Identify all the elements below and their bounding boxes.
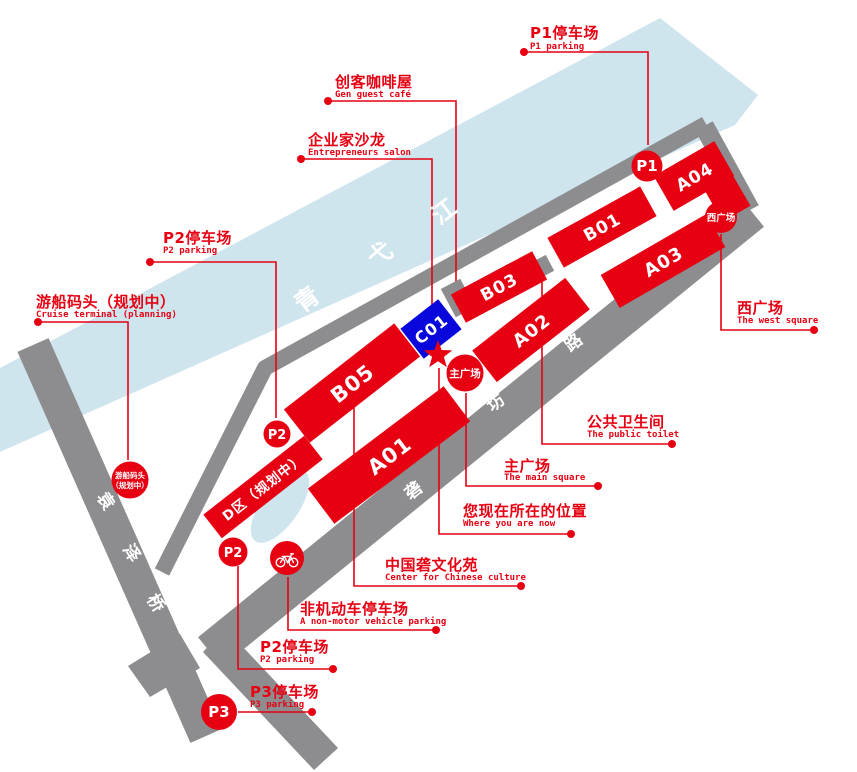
label-p2-parking-upper-zh: P2停车场	[163, 229, 232, 247]
cruise-marker-line2: （规划中）	[111, 480, 149, 490]
label-you-are-here-zh: 您现在所在的位置	[462, 502, 587, 520]
bicycle-parking-marker	[270, 541, 304, 575]
p2-upper-marker: P2	[264, 421, 291, 448]
main-square-marker: 主广场	[447, 355, 484, 392]
label-main-square-en: The main square	[504, 472, 586, 483]
label-entrepreneurs-salon-zh: 企业家沙龙	[307, 131, 386, 149]
label-nonmotor-parking-zh: 非机动车停车场	[300, 600, 409, 618]
p2-upper-marker-label: P2	[268, 428, 287, 443]
label-p2-parking-lower: P2停车场 P2 parking	[260, 638, 337, 673]
label-p1-parking-en: P1 parking	[530, 41, 584, 52]
cruise-terminal-marker: 游船码头 （规划中）	[111, 462, 149, 499]
main-square-marker-label: 主广场	[449, 367, 481, 380]
label-west-square: 西广场 The west square	[737, 299, 819, 334]
label-you-are-here: 您现在所在的位置 Where you are now	[462, 502, 587, 538]
label-entrepreneurs-salon-en: Entrepreneurs salon	[308, 148, 411, 158]
label-maker-cafe-zh: 创客咖啡屋	[334, 73, 413, 91]
label-culture-center: 中国砻文化苑 Center for Chinese culture	[385, 556, 526, 590]
p2-lower-marker: P2	[219, 538, 248, 567]
p1-marker-label: P1	[636, 157, 657, 175]
p2-lower-marker-label: P2	[224, 546, 243, 561]
label-main-square: 主广场 The main square	[504, 457, 602, 490]
label-public-toilet-en: The public toilet	[587, 429, 679, 440]
label-p3-parking-en: P3 parking	[250, 699, 304, 710]
label-culture-center-zh: 中国砻文化苑	[385, 556, 478, 574]
label-p2-parking-upper-en: P2 parking	[163, 245, 217, 256]
label-west-square-zh: 西广场	[737, 299, 784, 317]
p1-marker: P1	[632, 151, 663, 182]
label-p2-parking-lower-en: P2 parking	[260, 654, 314, 665]
p3-marker-label: P3	[208, 703, 229, 721]
cruise-marker-line1: 游船码头	[115, 470, 145, 480]
west-square-marker: 西广场	[705, 201, 737, 233]
p3-marker: P3	[201, 694, 237, 730]
label-you-are-here-en: Where you are now	[463, 519, 556, 529]
label-cruise-terminal-en: Cruise terminal (planning)	[36, 309, 177, 320]
label-maker-cafe-en: Gen guest café	[335, 89, 411, 100]
label-public-toilet: 公共卫生间 The public toilet	[587, 413, 679, 448]
label-nonmotor-parking: 非机动车停车场 A non-motor vehicle parking	[300, 600, 446, 634]
label-west-square-en: The west square	[737, 316, 819, 326]
label-culture-center-en: Center for Chinese culture	[385, 572, 526, 583]
label-p1-parking-zh: P1停车场	[530, 24, 599, 42]
label-public-toilet-zh: 公共卫生间	[587, 413, 665, 431]
site-map: B05 A01 C01 B03 B01 A02 A03	[0, 0, 857, 772]
label-nonmotor-parking-en: A non-motor vehicle parking	[300, 616, 446, 627]
label-p3-parking-zh: P3停车场	[250, 683, 319, 701]
label-p2-parking-lower-zh: P2停车场	[260, 638, 329, 656]
label-cruise-terminal-zh: 游船码头（规划中）	[36, 293, 176, 311]
west-square-marker-label: 西广场	[707, 212, 736, 224]
